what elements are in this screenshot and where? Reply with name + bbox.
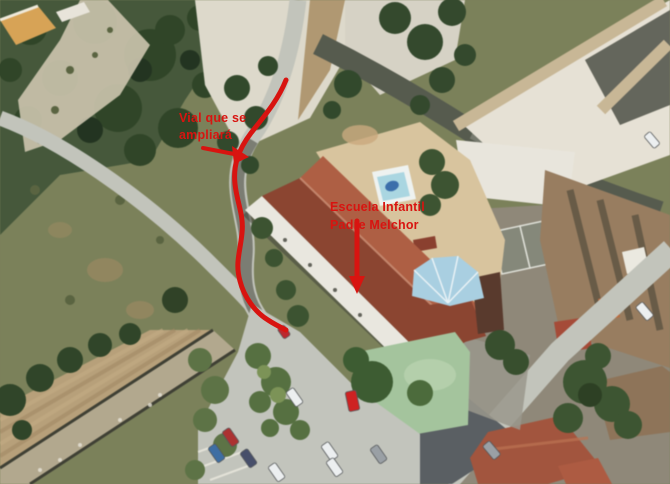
- aerial-photo-figure: Vial que se ampliará Escuela Infantil Pa…: [0, 0, 670, 484]
- road-widening-label-line1: Vial que se: [179, 111, 246, 125]
- aerial-photo: Vial que se ampliará Escuela Infantil Pa…: [0, 0, 670, 484]
- aerial-scene: [0, 0, 670, 484]
- playground-tree: [407, 380, 433, 406]
- road-widening-label-line2: ampliará: [179, 128, 232, 142]
- patio-dirt-patch: [342, 125, 378, 145]
- school-label-line2: Padre Melchor: [330, 218, 419, 232]
- school-label-line1: Escuela Infantil: [330, 200, 425, 214]
